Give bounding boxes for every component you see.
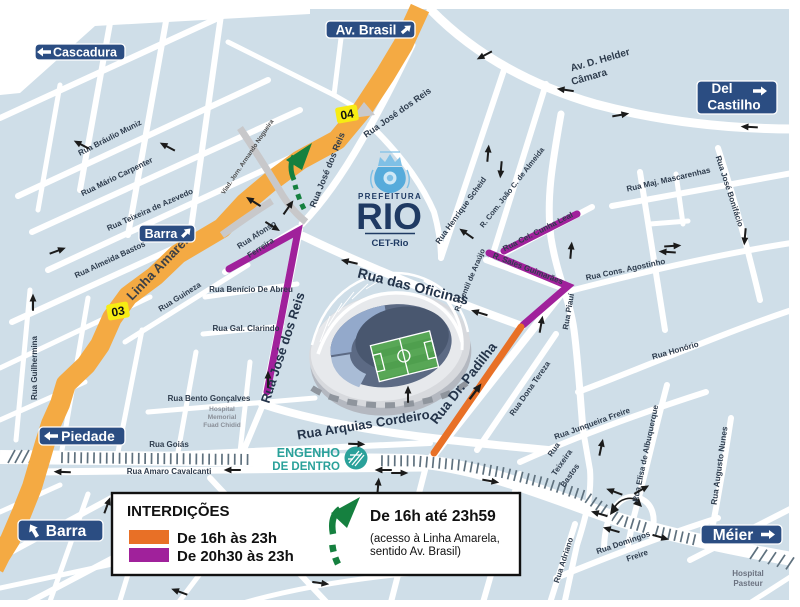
svg-text:De 20h30 às 23h: De 20h30 às 23h — [177, 548, 294, 565]
svg-text:Rua Goiás: Rua Goiás — [149, 440, 189, 449]
svg-text:RIO: RIO — [356, 196, 422, 237]
svg-text:Rua Bento Gonçalves: Rua Bento Gonçalves — [168, 394, 251, 403]
svg-text:Piedade: Piedade — [61, 428, 115, 444]
svg-text:Méier: Méier — [713, 527, 754, 544]
svg-text:Rua Amaro Cavalcanti: Rua Amaro Cavalcanti — [127, 467, 212, 476]
svg-text:04: 04 — [339, 106, 355, 122]
svg-text:INTERDIÇÕES: INTERDIÇÕES — [127, 502, 230, 520]
svg-text:03: 03 — [110, 303, 126, 319]
svg-text:Cascadura: Cascadura — [53, 46, 118, 60]
svg-text:sentido Av. Brasil): sentido Av. Brasil) — [370, 546, 461, 558]
svg-text:ENGENHO: ENGENHO — [277, 446, 340, 460]
svg-text:DE DENTRO: DE DENTRO — [272, 461, 340, 473]
svg-text:Rua Guilhermina: Rua Guilhermina — [30, 335, 39, 400]
svg-text:Fuad Chidid: Fuad Chidid — [203, 422, 241, 429]
svg-text:De 16h às 23h: De 16h às 23h — [177, 530, 277, 547]
svg-text:Rua Gal. Clarindo: Rua Gal. Clarindo — [212, 324, 279, 333]
svg-text:Hospital: Hospital — [209, 406, 235, 413]
svg-text:Av. Brasil: Av. Brasil — [336, 22, 397, 37]
svg-text:Rua Benício De Abreu: Rua Benício De Abreu — [209, 285, 293, 294]
svg-text:Barra: Barra — [46, 523, 87, 540]
svg-text:Hospital: Hospital — [732, 569, 764, 578]
svg-text:Del: Del — [711, 81, 732, 96]
svg-text:(acesso à Linha Amarela,: (acesso à Linha Amarela, — [370, 533, 500, 545]
svg-text:CET-Rio: CET-Rio — [372, 238, 409, 249]
svg-text:Pasteur: Pasteur — [733, 579, 762, 588]
svg-text:Castilho: Castilho — [707, 98, 760, 113]
svg-text:Barra: Barra — [145, 227, 179, 241]
svg-text:De 16h até 23h59: De 16h até 23h59 — [370, 508, 496, 525]
svg-text:Memorial: Memorial — [208, 414, 237, 421]
